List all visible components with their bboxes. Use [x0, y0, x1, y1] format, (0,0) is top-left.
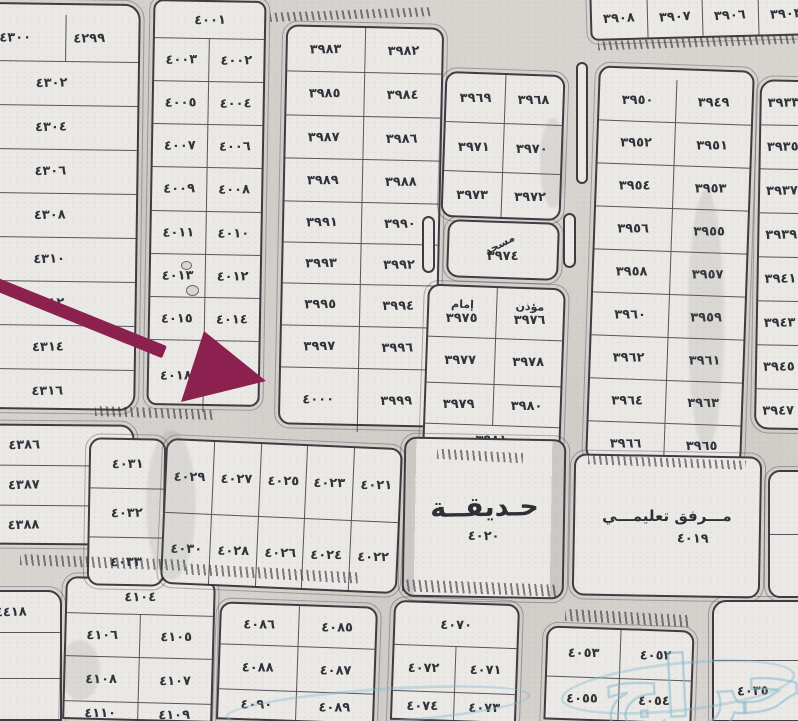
parcel-row: ٣٩٥٤٣٩٥٣	[596, 163, 749, 211]
parcel-row: ٤٠٨٨٤٠٨٧	[219, 644, 374, 694]
parcel: ٣٩٩٥	[282, 283, 360, 326]
parcel: ٤٠١٥	[150, 297, 206, 340]
parcel-number: ٤٠٠٢	[221, 54, 253, 68]
parcel: ٤٠٠٥	[153, 81, 209, 124]
road-median	[576, 62, 588, 184]
parcel-number: ٤٠٠٩	[163, 182, 195, 196]
road-median	[422, 216, 435, 273]
parcel: ٤٠١٤	[205, 298, 260, 341]
parcel: ٣٩٨٦	[363, 117, 440, 161]
parcel: ٤٣٠٢	[0, 61, 138, 106]
parcel-number: ٣٩٧٥	[446, 311, 478, 324]
parcel-number: ٣٩٩٠	[384, 217, 416, 230]
parcel: ٣٩٣٥	[761, 125, 798, 169]
parcel-row: إمام٣٩٧٥مؤذن٣٩٧٦	[428, 286, 564, 342]
parcel-row: ٤٠٧٠	[395, 602, 518, 649]
parcel: ٣٩٩١	[284, 201, 362, 243]
map-speck	[181, 261, 192, 270]
parcel-number: ٤٠٠٥	[165, 96, 197, 110]
parcel-row: ٤٣٠٤	[0, 105, 137, 151]
parcel-number: ٤٣٨٦	[8, 438, 40, 452]
parcel: ٤٠١٧	[203, 341, 258, 413]
parcel-row: ٣٩٥٠٣٩٤٩	[599, 77, 752, 125]
parcel: ٣٩٤١	[758, 257, 798, 301]
parcel: ٣٩٧١	[444, 122, 504, 172]
parcel-number: ٤٣٠٠	[0, 30, 32, 44]
parcel: ٤٠٨٨	[219, 644, 298, 691]
parcel-row: مسجد٣٩٧٤	[448, 221, 558, 279]
parcel-row: ٣٩٧٧٣٩٧٨	[427, 337, 563, 388]
parcel-number: ٣٩٨٤	[387, 89, 419, 102]
parcel: ٤٠٢٧	[212, 442, 262, 516]
parcel: ٤٠٠٤	[208, 82, 263, 125]
parcel-row: ٤٣٠٠٤٢٩٩	[0, 14, 139, 63]
parcel-number: ٤٠٢٥	[267, 474, 299, 487]
parcel-number: ٣٩٧٦	[514, 314, 546, 327]
area-title: حـديقــة	[430, 491, 539, 524]
parcel: ٣٩٧٧	[427, 337, 496, 384]
parcel-number: ٣٩٧٤	[487, 250, 519, 263]
parcel-row: ٣٩٩٥٣٩٩٤	[282, 283, 437, 328]
parcel-row: ٣٩٣٣	[761, 81, 798, 126]
block-4300s-left: ٤٣٠٠٤٢٩٩٤٣٠٢٤٣٠٤٤٣٠٦٤٣٠٨٤٣١٠٤٣١٢٤٣١٤٤٣١٦	[0, 2, 141, 411]
parcel-number: ٣٩٧٩	[443, 397, 475, 410]
parcel-row: ٣٩٨٩٣٩٨٨	[284, 158, 439, 204]
parcel-row: ٤٣٠٢	[0, 61, 138, 107]
parcel: ٤٠٨٦	[221, 603, 300, 646]
parcel-number: ٣٩٥٠	[622, 93, 654, 106]
education-facility-block: مـــرفق تعليمـــي٤٠١٩	[572, 453, 762, 598]
mosque-block: مسجد٣٩٧٤	[446, 219, 560, 281]
parcel-row: ٣٩٩٧٣٩٩٦	[281, 325, 436, 370]
parcel-number: ٣٩٣٣	[768, 96, 798, 110]
road-label-scribble	[565, 609, 690, 628]
parcel-number: ٤١٠٥	[160, 630, 192, 643]
parcel-number: ٣٩٨٠	[511, 400, 543, 413]
parcel: ٣٩٩٧	[281, 325, 359, 368]
parcel-number: ٣٩٧٢	[515, 190, 547, 203]
parcel-number: ٣٩٨٥	[309, 87, 341, 100]
parcel-row: ٣٩٨٧٣٩٨٦	[285, 115, 440, 161]
parcel-number: ٤٠٨٧	[320, 664, 352, 677]
parcel-number: ٤٠١٨	[160, 369, 192, 383]
parcel-row: ٣٩٣٩	[759, 213, 798, 258]
parcel: إمام٣٩٧٥	[428, 286, 497, 338]
parcel-number: ٤٠٢٤	[311, 548, 343, 561]
parcel-row: ٤٤١٨	[0, 592, 60, 633]
parcel-number: ٣٩٧٧	[445, 354, 477, 367]
parcel-number: ٣٩٥٢	[620, 136, 652, 149]
parcel: ٣٩٩٣	[283, 242, 361, 284]
parcel: ٣٩٨٤	[364, 73, 441, 118]
parcel-number: ٤٠٨٥	[321, 621, 353, 634]
parcel-number: ٤٠٢١	[361, 478, 393, 491]
block-3980s-3990s: ٣٩٨٣٣٩٨٢٣٩٨٥٣٩٨٤٣٩٨٧٣٩٨٦٣٩٨٩٣٩٨٨٣٩٩١٣٩٩٠…	[278, 24, 444, 427]
parcel-row: ٤٠٣٠٤٠٢٨٤٠٢٦٤٠٢٤٤٠٢٢	[162, 513, 398, 593]
parcel-number: ٣٩٨٨	[385, 175, 417, 188]
parcel-number: ٤٠١٣	[162, 269, 194, 283]
parcel-row: ٣٩٥٢٣٩٥١	[598, 120, 751, 168]
parcel-number: ٤٠١٢	[217, 270, 249, 284]
parcel: ٤٠٠٦	[208, 125, 263, 168]
parcel-row	[770, 472, 798, 535]
parcel-number: ٤٠٠١	[194, 13, 226, 27]
parcel-row: ٤٠٨٦٤٠٨٥	[221, 603, 376, 649]
parcel-number: ٣٩٣٩	[765, 228, 797, 242]
parcel-row: ٤٠١٥٤٠١٤	[150, 297, 260, 342]
parcel-row: ٤٠٢٩٤٠٢٧٤٠٢٥٤٠٢٣٤٠٢١	[165, 440, 401, 523]
parcel-number: ٣٩٦٩	[460, 92, 492, 105]
parcel-row: ٤٠٠٣٤٠٠٢	[154, 38, 264, 83]
parcel: ٤٠١١	[151, 211, 207, 254]
parcel-number: ٤٠٥٣	[568, 646, 600, 659]
parcel-number: ٤٣٠٢	[36, 76, 68, 90]
road-label-scribble	[270, 7, 432, 22]
parcel-row: ٣٩٨٥٣٩٨٤	[286, 71, 441, 118]
parcel: ٤٠٨٥	[298, 606, 376, 649]
parcel-number: ٣٩٥٨	[616, 265, 648, 278]
parcel	[770, 535, 798, 595]
parcel: ٤٤١٨	[0, 592, 60, 632]
parcel-number: ٣٩٥١	[697, 139, 729, 152]
parcel-number: ٤٠٠٨	[218, 183, 250, 197]
parcel: ٤٣٠٤	[0, 105, 137, 150]
parcel-number: ٤٠١٠	[217, 227, 249, 241]
parcel: ٣٩٨٨	[362, 160, 439, 204]
parcel: ٤٠٠١	[155, 1, 265, 39]
parcel: ٣٩٣٧	[760, 169, 798, 213]
parcel-number: ٣٩٤٩	[698, 96, 730, 109]
cadastral-map: ٤٣٠٠٤٢٩٩٤٣٠٢٤٣٠٤٤٣٠٦٤٣٠٨٤٣١٠٤٣١٢٤٣١٤٤٣١٦…	[0, 0, 798, 721]
parcel: ٣٩٦٢	[590, 335, 668, 380]
parcel-row: ٣٩٤٧	[756, 389, 798, 433]
parcel-row: ٣٩٩٣٣٩٩٢	[283, 242, 438, 286]
parcel-number: ٣٩٧٣	[456, 188, 488, 201]
parcel-row	[770, 535, 798, 595]
parcel-number: ٤٠٣٢	[110, 506, 142, 520]
parcel: ٣٩٩٤	[359, 285, 436, 328]
parcel: ٤٣٠٦	[0, 149, 137, 194]
parcel-number: ٣٩٠٧	[659, 9, 691, 24]
parcel-number: ٣٩٣٧	[766, 184, 798, 198]
parcel-row: ٣٩٤٣	[757, 301, 798, 346]
parcel: ٤٠٠٢	[209, 39, 264, 82]
parcel-row: ٣٩٤١	[758, 257, 798, 302]
parcel: ٤١٠٧	[138, 658, 212, 704]
parcel-number: ٣٩٩٢	[383, 258, 415, 271]
parcel-row: ٣٩٨٣٣٩٨٢	[287, 26, 442, 74]
parcel: ٤٠٢٥	[259, 444, 309, 518]
parcel-number: ٣٩٦٦	[610, 437, 642, 450]
parcel-row: ٤٣٠٨	[0, 193, 136, 239]
parcel: ٣٩٤٩	[676, 80, 753, 125]
parcel-number: ٣٩٨٦	[386, 132, 418, 145]
parcel	[0, 633, 60, 678]
parcel-number: ٤١١٠	[85, 707, 117, 720]
parcel-number: ٣٩٤٧	[762, 404, 794, 418]
parcel: ٣٩٣٣	[761, 81, 798, 125]
block-3940s-edge-column: ٣٩٣٣٣٩٣٥٣٩٣٧٣٩٣٩٣٩٤١٣٩٤٣٣٩٤٥٣٩٤٧	[754, 79, 798, 430]
parcel-number: ٤٠٠٦	[219, 140, 251, 154]
parcel: ٣٩٨٧	[285, 115, 363, 159]
road-median	[563, 213, 576, 268]
parcel-number: ٤٣٠٤	[35, 120, 67, 134]
parcel: ٤٢٩٩	[66, 15, 139, 62]
parcel: ٣٩٤٥	[757, 345, 798, 389]
parcel-number: ٤٣٠٨	[34, 208, 66, 222]
parcel-number: ٣٩٠٣	[769, 6, 798, 21]
parcel-number: ٤٠٢٦	[264, 546, 296, 559]
parcel-number: ٤١٠٤	[124, 590, 156, 603]
parcel-number: ٤٠٨٨	[242, 661, 274, 674]
parcel-number: ٤٠٠٧	[164, 139, 196, 153]
parcel-row: ٣٩٦٩٣٩٦٨	[446, 73, 564, 126]
parcel-number: ٤٤١٨	[0, 605, 27, 619]
parcel: ٤٠٠٨	[207, 168, 262, 212]
imam-muezzin-block: إمام٣٩٧٥مؤذن٣٩٧٦٣٩٧٧٣٩٧٨٣٩٧٩٣٩٨٠٣٩٨١	[422, 284, 566, 457]
parcel: ٣٩٥٢	[598, 120, 676, 165]
parcel-number: ٤٠٠٤	[220, 97, 252, 111]
parcel-number: ٤٠٠٠	[303, 393, 335, 406]
scan-smudge	[146, 430, 196, 580]
parcel: ٤٠٢٣	[305, 446, 355, 520]
parcel-number: ٤١٠٧	[159, 674, 191, 687]
parcel-number: ٣٩٨٩	[307, 173, 339, 186]
parcel: ٣٩٧٨	[494, 339, 562, 386]
parcel-row: ٤٠١٣٤٠١٢	[150, 254, 260, 299]
parcel: ٤٣١٠	[0, 237, 136, 282]
parcel-number: ٤٣٠٦	[34, 164, 66, 178]
parcel-number: ٤٢٩٩	[73, 32, 105, 46]
parcel-number: ٣٩٧١	[458, 140, 490, 153]
block-4410s-left: ٤٤١٨	[0, 590, 62, 721]
parcel: ٤٠٨٧	[297, 647, 375, 694]
parcel: ٤٠١٢	[205, 255, 260, 298]
parcel: ٣٩٠٦	[702, 0, 759, 36]
parcel-number: ٤٠٢٠	[468, 529, 500, 545]
parcel-number: ٤٠١٥	[161, 312, 193, 326]
parcel: ٤٠٧٠	[395, 602, 518, 648]
parcel: ٤٠٠٩	[152, 167, 208, 211]
parcel-row: ٤٣٠٦	[0, 149, 137, 195]
parcel-number: ٣٩٦٤	[611, 394, 643, 407]
parcel: ٣٩٠٨	[592, 0, 649, 39]
parcel-number: ٣٩٩١	[306, 215, 338, 228]
parcel-number: ٣٩٩٤	[382, 300, 414, 313]
parcel: مؤذن٣٩٧٦	[496, 288, 564, 340]
parcel-number: ٣٩٤١	[764, 272, 796, 286]
parcel-number: ٤٣١٦	[31, 384, 63, 398]
parcel-number: ٤٠١٤	[216, 313, 248, 327]
parcel-number: ٤٠٨٦	[244, 618, 276, 631]
parcel: ٤٠٢١	[352, 448, 401, 522]
parcel-number: ٣٩٣٥	[767, 140, 798, 154]
parcel-number: ٤٣٨٧	[8, 478, 40, 492]
parcel: ٣٩٥١	[674, 123, 751, 168]
parcel-number: ٤٠٠٣	[166, 53, 198, 67]
parcel: ٣٩٣٩	[759, 213, 798, 257]
parcel-row: ٣٩٠٨٣٩٠٧٣٩٠٦٣٩٠٣	[592, 0, 798, 39]
parcel-number: ٣٩٤٣	[764, 316, 796, 330]
parcel-number: ٣٩٠٦	[714, 8, 746, 23]
parcel-number: ٣٩٧٨	[512, 356, 544, 369]
parcel-number: ٣٩٥٤	[619, 179, 651, 192]
parcel-number: ٤٠٧٢	[408, 662, 440, 675]
parcel-row: ٤٠٠٩٤٠٠٨	[152, 167, 262, 213]
parcel: ٣٩٧٣	[442, 171, 502, 219]
parcel-number: ٤٠٢٧	[220, 472, 252, 485]
parcel: ٣٩٦٩	[446, 73, 506, 123]
scan-smudge	[688, 190, 724, 450]
parcel-number: ٣٩٨٢	[387, 44, 419, 57]
parcel: ٤١٠٥	[139, 615, 213, 659]
parcel: ٣٩٠٣	[758, 0, 798, 35]
parcel-row: ٣٩٣٧	[760, 169, 798, 214]
parcel-number: ٤٠٧٠	[440, 619, 472, 632]
parcel-number: ٣٩٩٥	[305, 298, 337, 311]
parcel-number: ٣٩٥٦	[617, 222, 649, 235]
parcel-row: ٤٣١٠	[0, 237, 136, 283]
parcel-number: ٣٩٦٨	[518, 94, 550, 107]
parcel-number: ٤١٠٦	[87, 628, 119, 641]
parcel: ٤١٠٩	[137, 703, 210, 721]
parcel-row: ٣٩٧٩٣٩٨٠	[425, 383, 560, 429]
parcel: ٣٩٨٩	[285, 158, 363, 202]
parcel-number: ٤٣٨٨	[8, 518, 40, 532]
parcel-number: ٣٩٩٩	[380, 395, 412, 408]
target-parcel: ٤٠٠٠	[280, 367, 359, 432]
parcel-row	[0, 633, 60, 679]
scan-smudge	[540, 118, 566, 208]
parcel	[0, 679, 60, 721]
parcel-number: ٤١٠٩	[158, 709, 190, 721]
parcel	[770, 472, 798, 534]
parcel: ٣٩٨٠	[493, 385, 561, 427]
parcel: ٤٣٠٨	[0, 193, 136, 238]
parcel-row: ٣٩٤٥	[757, 345, 798, 390]
parcel: مسجد٣٩٧٤	[448, 221, 558, 279]
parcel: ٣٩٦٠	[592, 292, 670, 337]
block-3950s-3960s-right: ٣٩٥٠٣٩٤٩٣٩٥٢٣٩٥١٣٩٥٤٣٩٥٣٣٩٥٦٣٩٥٥٣٩٥٨٣٩٥٧…	[585, 65, 755, 465]
area-title: مـــرفق تعليمـــي	[602, 507, 732, 525]
parcel: ٤٠١٠	[206, 212, 261, 255]
parcel-number: ٣٩٩٧	[304, 340, 336, 353]
map-speck	[186, 285, 199, 296]
parcel: ٤٣٠٠	[0, 14, 66, 61]
parcel: ٣٩٥٤	[596, 163, 674, 208]
parcel: ٤٠٠٧	[153, 124, 209, 167]
parcel-row: ٤٠٠١	[155, 1, 265, 40]
parcel-row: ٣٩٥٦٣٩٥٥	[595, 206, 748, 254]
parcel-number: ٣٩٦٠	[614, 308, 646, 321]
parcel: ٤١١٠	[64, 701, 138, 721]
parcel-number: ٤٣١٠	[33, 252, 65, 266]
partial-right-edge-block	[768, 470, 798, 598]
parcel: ٣٩٤٧	[756, 389, 798, 433]
parcel-number: ٤٣١٤	[32, 340, 64, 354]
parcel-number: ٣٩٠٨	[603, 11, 635, 26]
scan-smudge	[60, 640, 100, 700]
parcel: ٣٩٠٧	[647, 0, 704, 37]
parcel-number: ٤٠٢٢	[357, 550, 389, 563]
parcel-number: ٣٩٩٣	[305, 256, 337, 269]
parcel-row	[0, 679, 60, 721]
parcel-number: ٣٩٤٥	[763, 360, 795, 374]
parcel: ٣٩٥٠	[599, 77, 677, 122]
parcel-number: ٤٠١٧	[215, 370, 247, 384]
parcel: ٣٩٨٢	[365, 28, 442, 74]
parcel-number: ٣٩٥٣	[695, 182, 727, 195]
parcel-row: ٤٠١١٤٠١٠	[151, 211, 261, 256]
parcel: ٤٠٠٣	[154, 38, 210, 81]
parcel-row: ٤٠٠٥٤٠٠٤	[153, 81, 263, 126]
parcel-row: ٤٠٠٧٤٠٠٦	[153, 124, 263, 169]
parcel-number: ٤٠٢٨	[217, 544, 249, 557]
parcel-row: ٤١١٠٤١٠٩	[64, 701, 211, 721]
parcel-number: ٤٠١٩	[677, 531, 709, 547]
parcel-number: ٤٠٧١	[470, 664, 502, 677]
parcel-row: ٣٩٩١٣٩٩٠	[284, 201, 439, 245]
parcel-number: ٣٩٨٣	[310, 43, 342, 56]
parcel-row: ٤٠٠٠٣٩٩٩	[280, 367, 435, 433]
parcel: ٣٩٥٨	[593, 249, 671, 294]
parcel-row: ٣٩٣٥	[760, 125, 798, 170]
parcel-number: ٤٠٣١	[111, 457, 143, 471]
parcel-number: ٤٠٢٣	[314, 476, 346, 489]
parcel-number: ٣٩٦٢	[613, 351, 645, 364]
parcel: ٣٩٧٩	[425, 383, 494, 425]
parcel: ٣٩٥٦	[595, 206, 673, 251]
parcel-number: ٣٩٨٧	[308, 130, 340, 143]
parcel-number: ٣٩٩٦	[381, 342, 413, 355]
parcel: ٣٩٦٤	[589, 378, 667, 423]
parcel: ٣٩٤٣	[757, 301, 798, 345]
parcel-number: ٤٠١١	[162, 226, 194, 240]
parcel: ٣٩٨٥	[286, 71, 364, 116]
parcel: ٣٩٨٣	[287, 26, 365, 72]
